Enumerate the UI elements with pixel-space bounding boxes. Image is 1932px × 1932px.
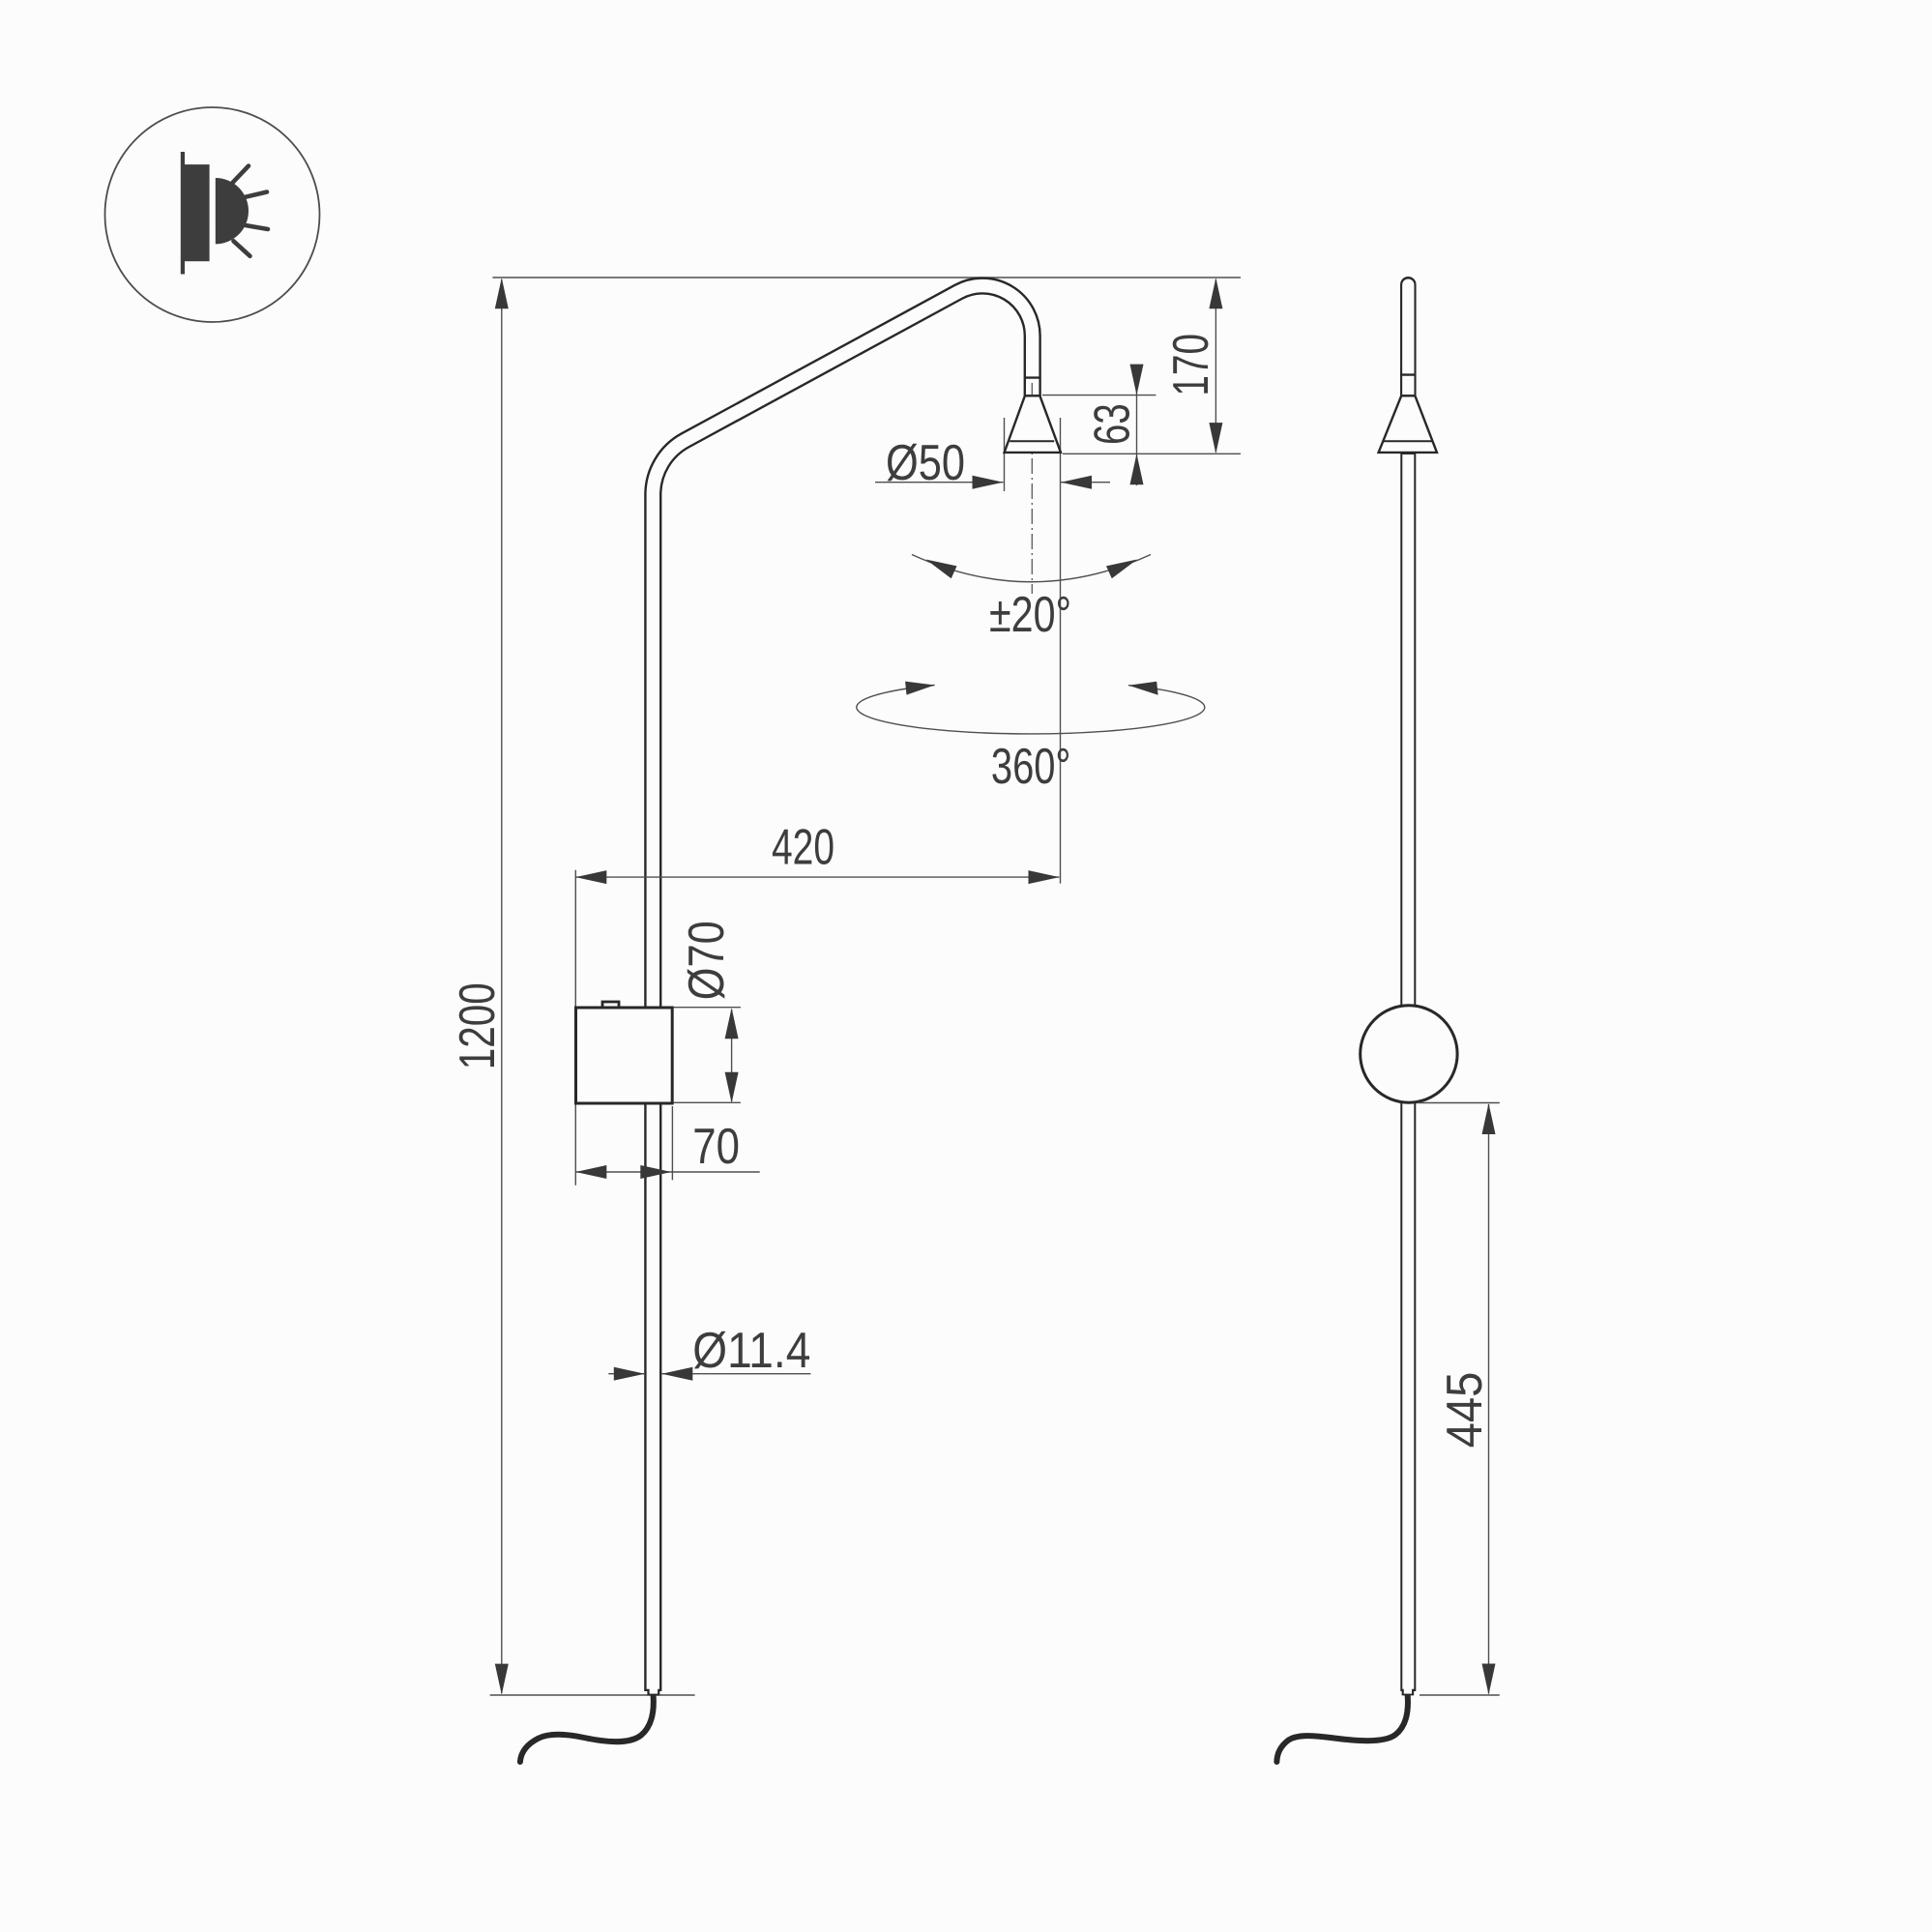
- svg-text:420: 420: [772, 820, 834, 876]
- svg-text:70: 70: [692, 1119, 740, 1175]
- svg-text:360°: 360°: [991, 739, 1071, 795]
- svg-text:170: 170: [1163, 334, 1219, 396]
- svg-text:Ø11.4: Ø11.4: [692, 1323, 810, 1379]
- svg-text:445: 445: [1437, 1372, 1493, 1449]
- svg-text:1200: 1200: [450, 982, 506, 1069]
- svg-text:Ø50: Ø50: [886, 435, 965, 491]
- svg-text:63: 63: [1085, 403, 1141, 445]
- svg-text:±20°: ±20°: [989, 587, 1071, 643]
- svg-text:Ø70: Ø70: [679, 921, 735, 1000]
